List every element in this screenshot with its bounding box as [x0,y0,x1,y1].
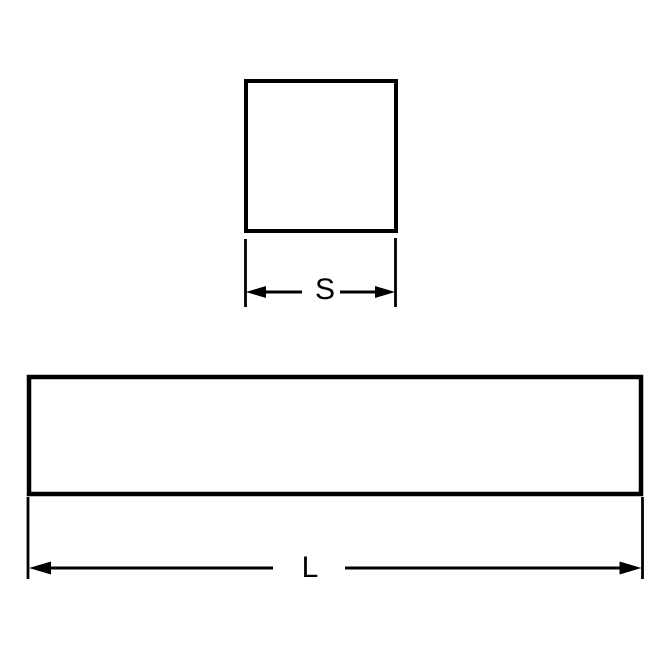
bar-side-view-outline [29,377,641,494]
s-arrow-right-icon [375,286,395,298]
technical-drawing: S L [0,0,670,670]
line-work: S L [28,81,643,584]
bar-length-dimension-label: L [302,551,319,584]
drawing-canvas: S L [0,0,670,670]
square-cross-section-outline [246,81,396,231]
l-arrow-right-icon [620,562,642,575]
l-arrow-left-icon [29,562,51,575]
square-side-dimension-label: S [315,273,335,306]
filled-elements: S L [29,273,642,584]
s-arrow-left-icon [246,286,266,298]
